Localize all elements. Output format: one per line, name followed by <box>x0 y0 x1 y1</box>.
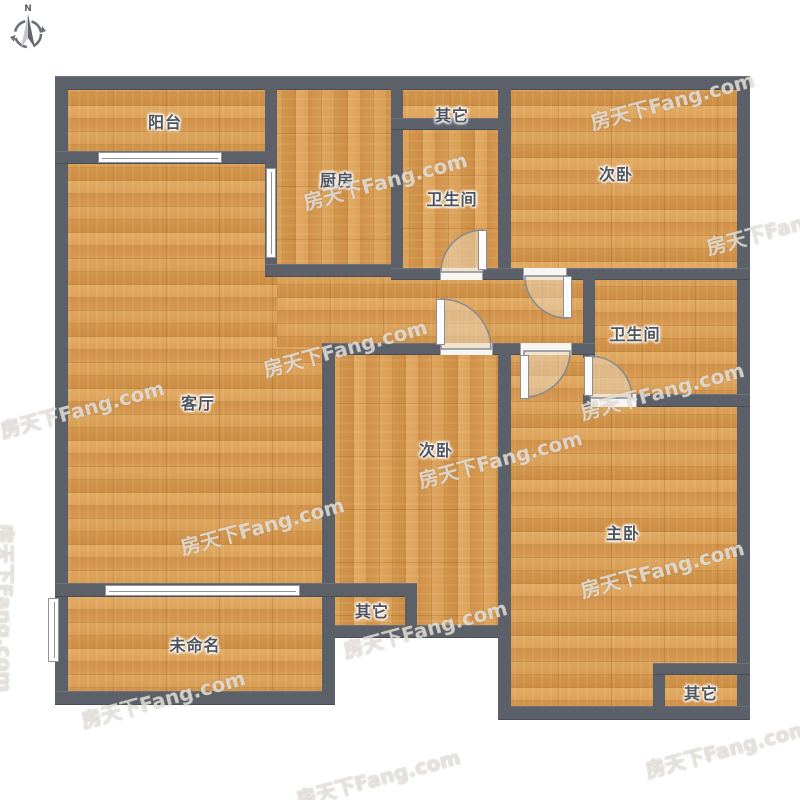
room-label-other-top: 其它 <box>435 102 469 126</box>
room-label-other-bottom-right: 其它 <box>684 680 718 704</box>
door-opening-master-bedroom <box>520 343 572 355</box>
room-label-bathroom-right: 卫生间 <box>609 321 660 345</box>
wall-master-left <box>498 343 511 720</box>
window-kitchen <box>266 168 276 258</box>
wall-kitchen-right <box>391 76 403 277</box>
room-label-balcony: 阳台 <box>148 109 182 133</box>
wall-other-br-top <box>653 663 750 675</box>
door-opening-bedroom-top-right <box>523 268 567 280</box>
wall-kitchen-bottom <box>265 264 403 277</box>
window-living-room <box>105 585 300 596</box>
room-label-unnamed-room: 未命名 <box>169 632 220 656</box>
door-leaf-bathroom-top <box>478 230 487 270</box>
window-unnamed-room <box>48 598 59 662</box>
wall-other-bm-right <box>405 583 417 638</box>
door-opening-bathroom-right <box>590 394 637 407</box>
door-opening-bedroom-middle <box>440 343 493 355</box>
door-leaf-bedroom-middle <box>436 299 445 345</box>
room-label-other-bottom-middle: 其它 <box>355 598 389 622</box>
room-label-bedroom-middle: 次卧 <box>419 437 453 461</box>
hallway-floor <box>277 272 587 347</box>
door-leaf-bathroom-right <box>584 356 593 396</box>
door-leaf-bedroom-top-right <box>563 276 572 318</box>
wall-living-middle-divider <box>322 343 335 705</box>
door-leaf-master-bedroom <box>520 355 529 399</box>
room-label-living-room: 客厅 <box>181 390 215 414</box>
wall-bedroom-topright-left <box>498 76 511 280</box>
watermark: 房天下Fang.com <box>0 524 21 693</box>
door-opening-bathroom-top <box>440 268 483 280</box>
floor-plan-canvas: 阳台 厨房 其它 卫生间 次卧 卫生间 客厅 次卧 主卧 未命名 其它 其它 房… <box>0 0 800 800</box>
compass-north-icon: N <box>6 2 50 60</box>
watermark: 房天下Fang.com <box>293 741 463 800</box>
room-label-kitchen: 厨房 <box>320 167 354 191</box>
compass-north-label: N <box>24 4 32 14</box>
wall-bottom-unnamed <box>55 691 334 705</box>
wall-bottom-master <box>498 706 750 720</box>
room-label-master-bedroom: 主卧 <box>606 520 640 544</box>
window-balcony <box>98 152 222 163</box>
room-label-bathroom-top: 卫生间 <box>426 186 477 210</box>
watermark: 房天下Fang.com <box>642 712 800 784</box>
room-label-bedroom-top-right: 次卧 <box>599 161 633 185</box>
